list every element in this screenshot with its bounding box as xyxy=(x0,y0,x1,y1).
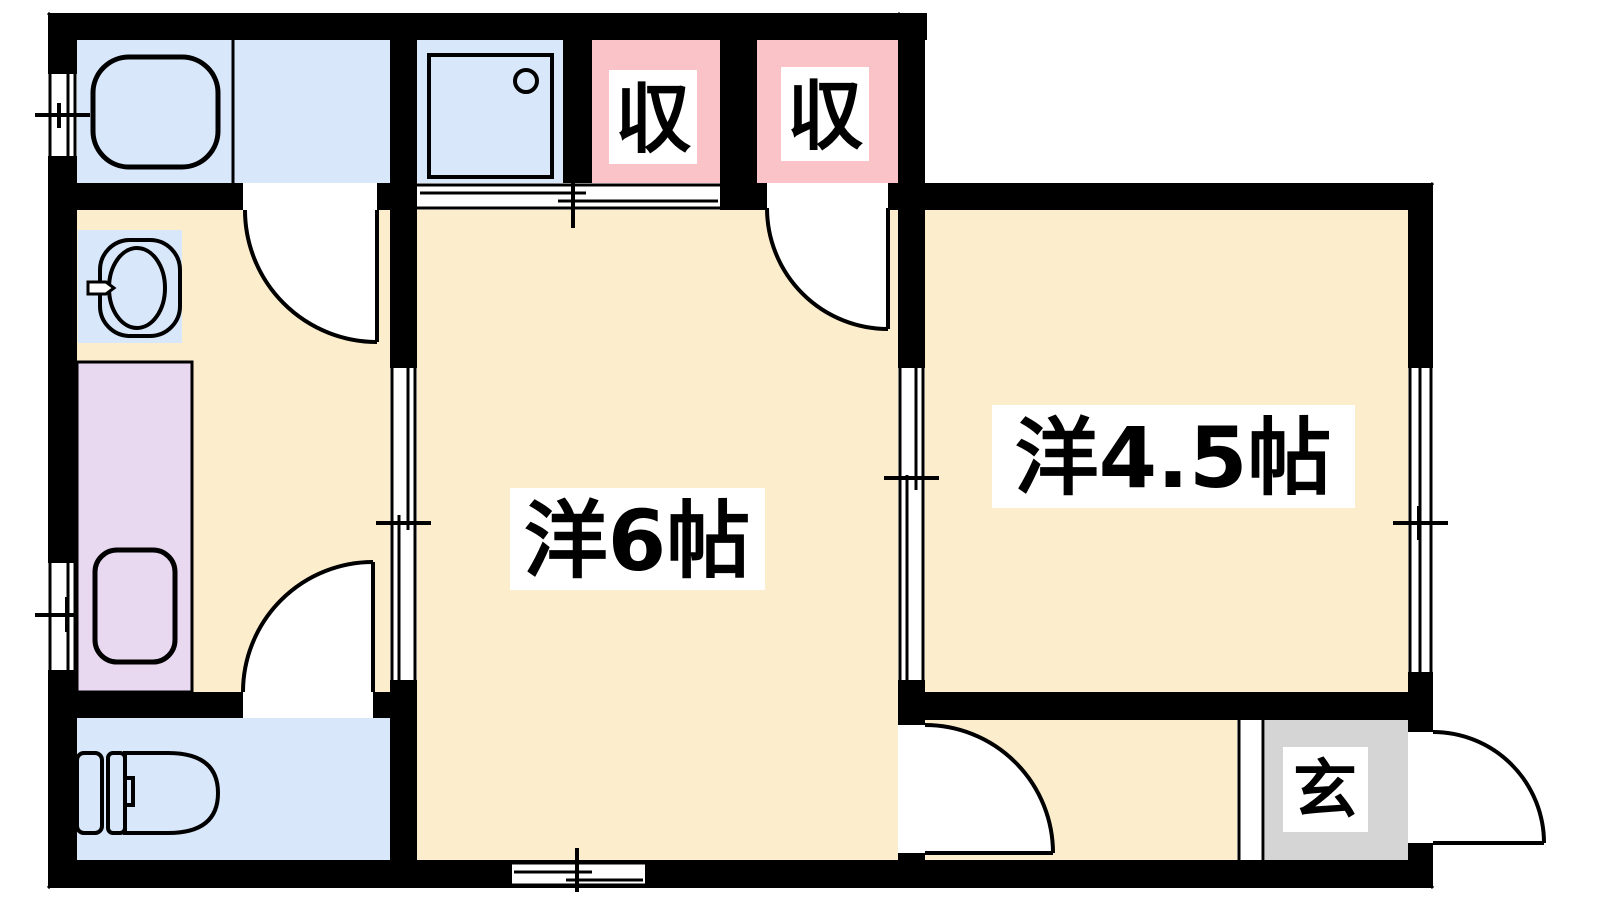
wall-room45-top xyxy=(899,183,1433,210)
opening-top-slide xyxy=(417,183,720,210)
wall-bottom xyxy=(48,860,1433,888)
shower-room-floor xyxy=(417,40,563,185)
opening-toilet-door xyxy=(243,692,373,718)
floor-plan-page: 洋6帖 洋4.5帖 収 収 玄 xyxy=(0,0,1600,900)
opening-hall-door xyxy=(898,725,925,853)
room45-label: 洋4.5帖 xyxy=(1015,409,1332,507)
wall-shower-closet xyxy=(563,40,592,183)
room6-label: 洋6帖 xyxy=(524,492,750,590)
wall-top xyxy=(48,13,927,40)
opening-entry-door xyxy=(1408,732,1433,843)
entrance-step xyxy=(1237,720,1265,860)
wall-closet-divider xyxy=(720,40,757,183)
opening-room45-slide xyxy=(898,368,925,680)
entrance-label: 玄 xyxy=(1293,754,1357,828)
wall-hall-top xyxy=(925,692,1433,720)
floor-plan-svg: 洋6帖 洋4.5帖 収 収 玄 xyxy=(0,0,1600,900)
opening-bathroom-door xyxy=(243,183,377,210)
closet1-label: 収 xyxy=(615,75,691,164)
faucet-icon xyxy=(88,282,114,294)
opening-closet2-door xyxy=(767,183,888,210)
closet2-label: 収 xyxy=(787,72,863,161)
